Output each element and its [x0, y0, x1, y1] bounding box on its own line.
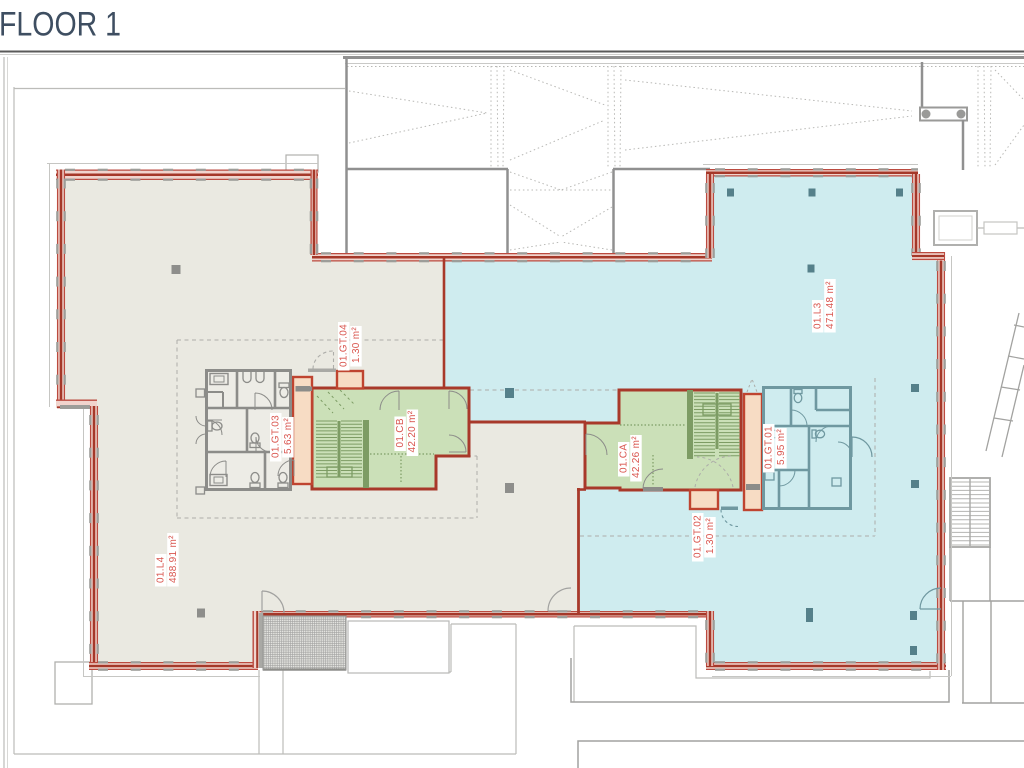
- svg-text:01.GT.01: 01.GT.01: [764, 426, 775, 469]
- svg-text:01.GT.04: 01.GT.04: [339, 324, 350, 367]
- svg-text:471.48 m²: 471.48 m²: [825, 281, 836, 329]
- svg-text:42.26 m²: 42.26 m²: [631, 436, 642, 478]
- svg-text:01.GT.02: 01.GT.02: [693, 515, 704, 558]
- svg-text:01.CA: 01.CA: [619, 444, 630, 473]
- svg-text:1.30 m²: 1.30 m²: [705, 518, 716, 554]
- svg-text:FLOOR 1: FLOOR 1: [0, 6, 121, 44]
- svg-text:01.CB: 01.CB: [395, 418, 406, 447]
- svg-text:5.95 m²: 5.95 m²: [776, 429, 787, 465]
- svg-text:01.GT.03: 01.GT.03: [271, 415, 282, 458]
- svg-text:01.L4: 01.L4: [156, 556, 167, 583]
- svg-text:01.L3: 01.L3: [813, 302, 824, 329]
- svg-text:42.20 m²: 42.20 m²: [407, 410, 418, 452]
- svg-text:1.30 m²: 1.30 m²: [351, 327, 362, 363]
- svg-text:488.91 m²: 488.91 m²: [168, 535, 179, 583]
- svg-text:5.63 m²: 5.63 m²: [283, 418, 294, 454]
